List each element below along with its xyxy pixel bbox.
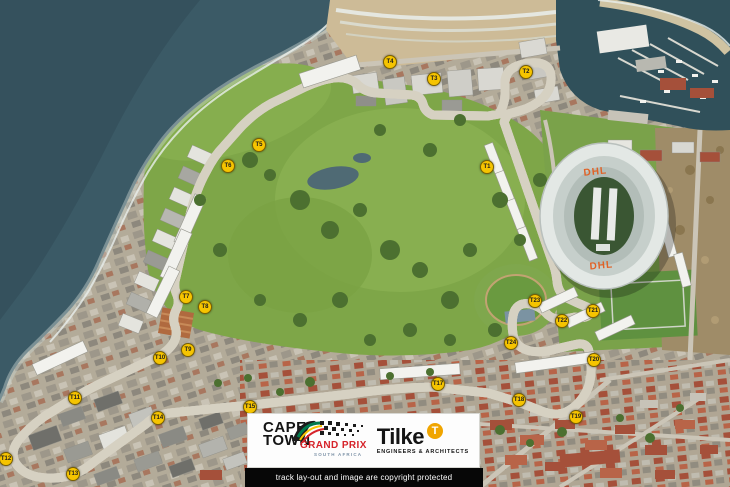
- turn-marker-t17: T17: [431, 377, 445, 391]
- turn-marker-t22: T22: [555, 314, 569, 328]
- south-africa-text: SOUTH AFRICA: [314, 452, 362, 457]
- turn-marker-t3: T3: [427, 72, 441, 86]
- turn-marker-t21: T21: [586, 304, 600, 318]
- turn-marker-t18: T18: [512, 393, 526, 407]
- turn-marker-t19: T19: [569, 410, 583, 424]
- logo-box: CAPE TOWN GRAND PRIX SOUTH AFRICA Tilke …: [247, 413, 480, 468]
- stadium-label-bottom: DHL: [589, 259, 613, 272]
- copyright-caption-text: track lay-out and image are copyright pr…: [276, 473, 453, 482]
- copyright-caption: track lay-out and image are copyright pr…: [245, 468, 483, 487]
- turn-marker-t1: T1: [480, 160, 494, 174]
- cape-town-grand-prix-logo: CAPE TOWN GRAND PRIX SOUTH AFRICA: [248, 414, 374, 467]
- turn-marker-t20: T20: [587, 353, 601, 367]
- turn-marker-t2: T2: [519, 65, 533, 79]
- turn-marker-t8: T8: [198, 300, 212, 314]
- turn-marker-t6: T6: [221, 159, 235, 173]
- turn-marker-t9: T9: [181, 343, 195, 357]
- grand-prix-text: GRAND PRIX: [300, 440, 367, 451]
- turn-marker-t14: T14: [151, 411, 165, 425]
- turn-marker-t11: T11: [68, 391, 82, 405]
- tilke-text: Tilke: [377, 426, 424, 448]
- turn-marker-t15: T15: [243, 400, 257, 414]
- turn-marker-t23: T23: [528, 294, 542, 308]
- turn-marker-t5: T5: [252, 138, 266, 152]
- screenshot-root: DHL DHL T1T2T3T4T5T6T7T8T9T10T11T12T13T1…: [0, 0, 730, 487]
- tilke-logo: Tilke T ENGINEERS & ARCHITECTS: [377, 426, 479, 455]
- tilke-badge-icon: T: [427, 423, 443, 439]
- turn-marker-t7: T7: [179, 290, 193, 304]
- turn-marker-t13: T13: [66, 467, 80, 481]
- turn-marker-t24: T24: [504, 336, 518, 350]
- turn-marker-t10: T10: [153, 351, 167, 365]
- turn-marker-t4: T4: [383, 55, 397, 69]
- tilke-subtitle: ENGINEERS & ARCHITECTS: [377, 449, 469, 455]
